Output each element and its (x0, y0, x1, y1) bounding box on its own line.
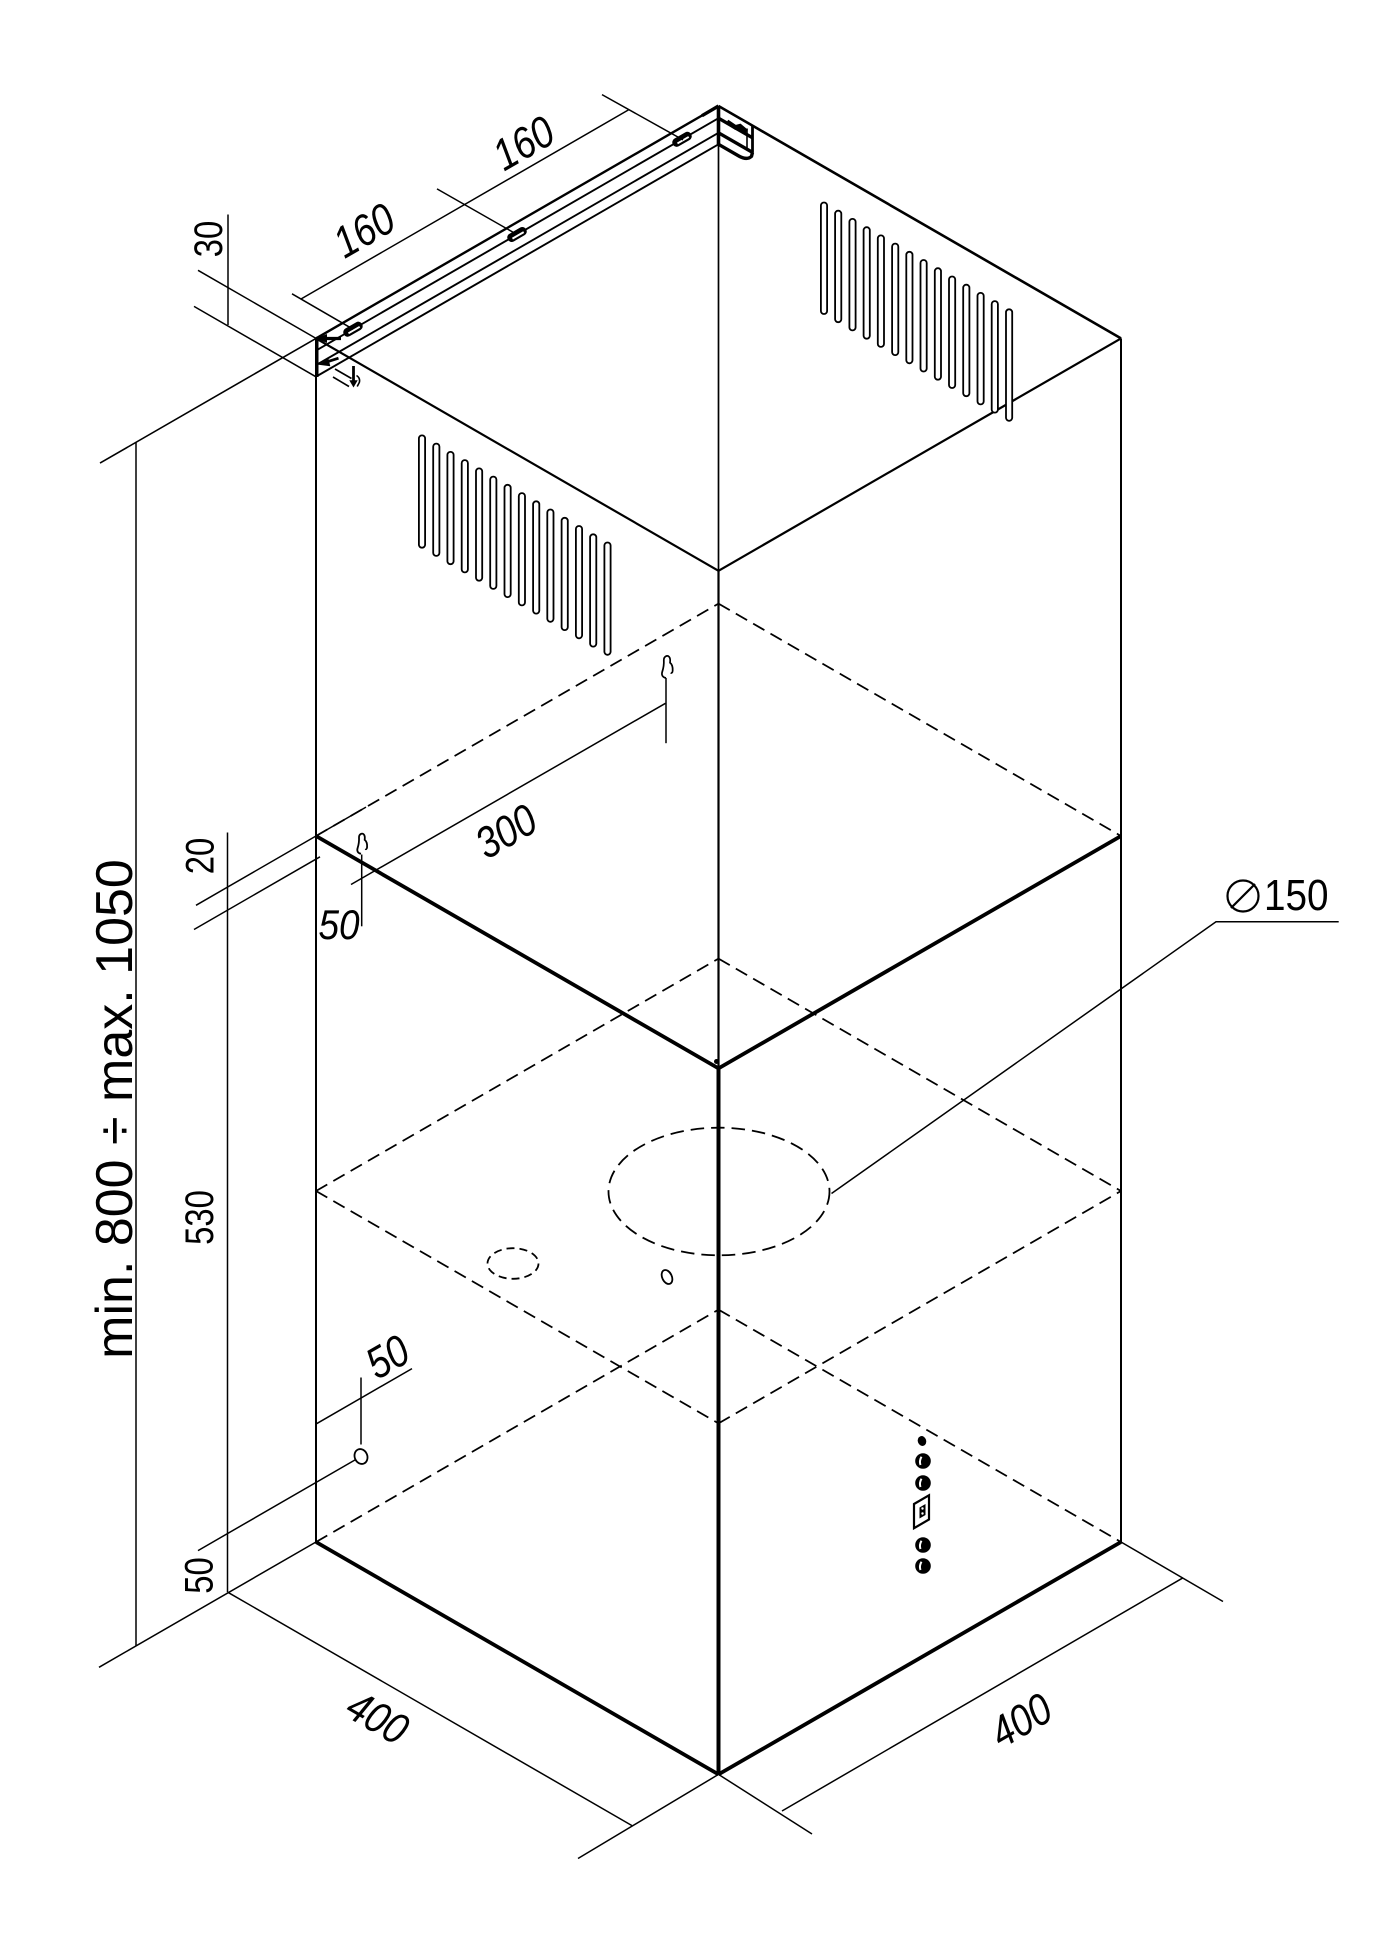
svg-text:50: 50 (176, 1557, 221, 1593)
svg-text:150: 150 (1264, 870, 1329, 920)
svg-text:530: 530 (177, 1190, 222, 1245)
svg-text:50: 50 (318, 902, 359, 949)
svg-text:min. 800 ÷ max. 1050: min. 800 ÷ max. 1050 (86, 859, 144, 1359)
svg-text:30: 30 (186, 221, 231, 257)
svg-text:20: 20 (177, 838, 222, 874)
